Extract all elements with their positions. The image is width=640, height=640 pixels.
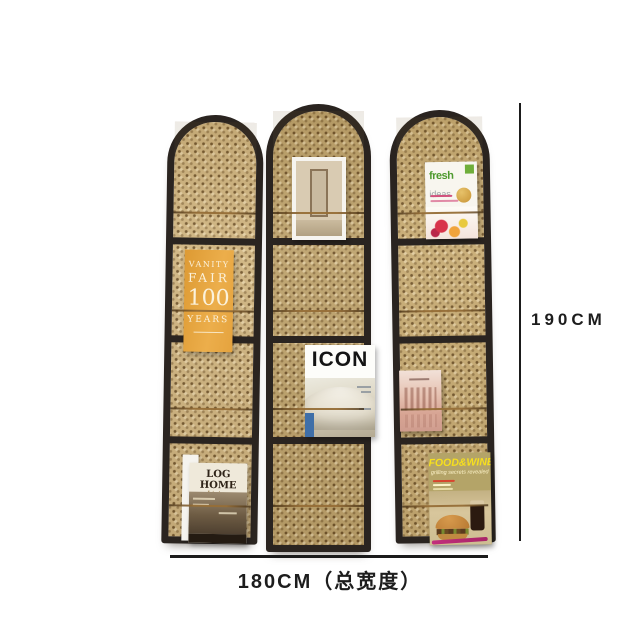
skyline-reflection-graphic: [405, 414, 437, 428]
magazine-title-line: VANITY: [185, 260, 234, 270]
cover-text-line: [409, 378, 429, 380]
magazine-title: FOOD&WINE: [428, 456, 490, 469]
magazine-vanity-fair: VANITY FAIR 100 YEARS: [183, 250, 234, 353]
magazine-subtitle: grilling secrets revealed: [429, 469, 491, 476]
screen-panel-middle: ICON: [266, 104, 371, 552]
height-dimension-line: [519, 103, 521, 541]
magazine-icon: ICON: [305, 345, 375, 437]
cover-spine: [305, 413, 314, 437]
crossbar: [399, 436, 489, 444]
magazine-title-word: fresh: [429, 170, 454, 182]
magazine-title: LOG HOME: [189, 469, 247, 492]
wire-shelf: [273, 212, 364, 214]
magazine-food-wine: FOOD&WINE grilling secrets revealed: [428, 452, 491, 545]
floor-graphic: [296, 220, 342, 237]
cover-rule: [193, 332, 223, 333]
width-dimension-label: 180CM（总宽度）: [140, 565, 520, 594]
wire-shelf: [170, 407, 252, 410]
cover-text-line: [430, 200, 458, 202]
magazine-fresh-ideas: fresh ideas: [425, 161, 478, 239]
product-image: VANITY FAIR 100 YEARS LOG HOME Living: [0, 0, 640, 640]
cover-text-line: [357, 386, 371, 388]
screen-panel-left: VANITY FAIR 100 YEARS LOG HOME Living: [161, 114, 264, 544]
crossbar: [171, 237, 257, 245]
wire-shelf: [273, 408, 364, 410]
magazine-title: ICON: [305, 348, 375, 372]
cover-text-line: [433, 488, 453, 490]
cover-photo: [296, 161, 342, 236]
wire-shelf: [273, 505, 364, 507]
magazine-interior: [292, 157, 346, 240]
wire-shelf: [173, 211, 255, 214]
cover-text-line: [361, 391, 371, 393]
cover-footer: [188, 534, 246, 544]
crossbar: [398, 335, 488, 343]
wire-shelf: [399, 309, 485, 312]
wire-shelf: [273, 310, 364, 312]
cover-text-line: [430, 195, 452, 197]
cover-text-line: [433, 480, 455, 482]
magazine-title-line: FAIR: [184, 271, 233, 286]
crossbar: [271, 437, 366, 444]
magazine-city: [399, 370, 442, 432]
magazine-title-line: YEARS: [184, 315, 233, 326]
height-dimension-label: 190CM: [531, 310, 606, 330]
cover-badge: [465, 164, 474, 173]
width-dimension-line: [170, 555, 488, 558]
cover-photo: [188, 492, 247, 535]
magazine-log-home: LOG HOME Living: [188, 463, 247, 544]
crossbar: [168, 436, 254, 444]
screen-panel-right: fresh ideas FOOD&WINE grilling secrets r…: [389, 109, 496, 544]
crossbar: [271, 336, 366, 343]
doorway-graphic: [310, 169, 328, 217]
wire-shelf: [401, 407, 487, 410]
magazine-title-line: 100: [184, 288, 233, 311]
cover-text-line: [433, 484, 451, 486]
